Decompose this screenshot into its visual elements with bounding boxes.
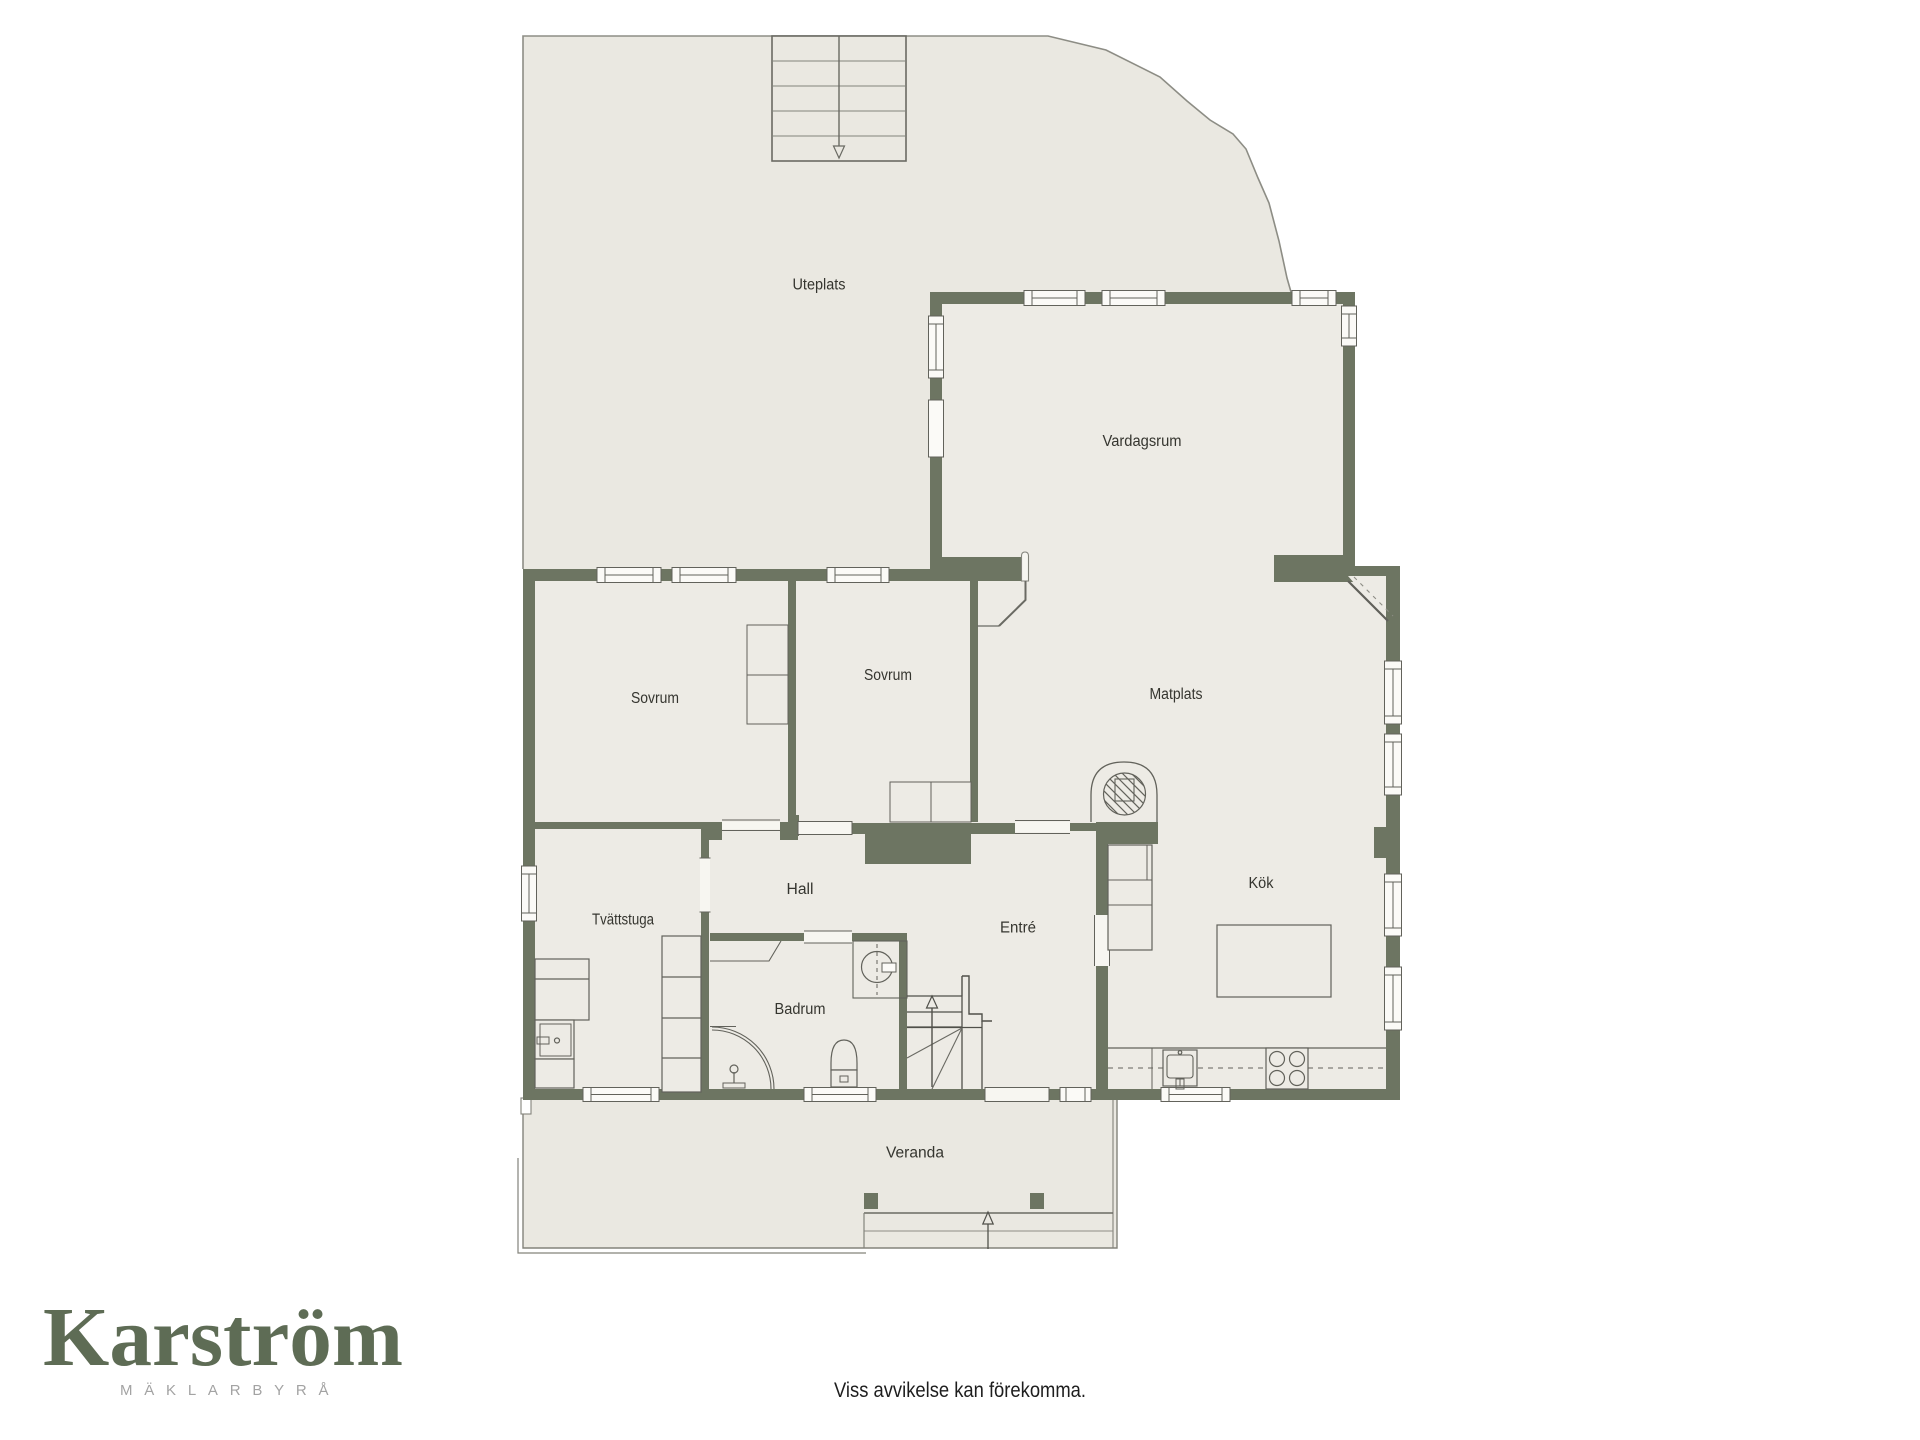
svg-text:Kök: Kök [1249,875,1274,892]
svg-text:Viss avvikelse kan förekomma.: Viss avvikelse kan förekomma. [834,1379,1086,1402]
svg-text:Vardagsrum: Vardagsrum [1103,433,1182,450]
svg-text:Badrum: Badrum [775,1001,826,1018]
svg-text:Karström: Karström [43,1291,403,1384]
svg-text:Sovrum: Sovrum [864,667,912,684]
svg-text:Tvättstuga: Tvättstuga [592,912,654,929]
svg-text:Veranda: Veranda [886,1145,944,1162]
svg-text:Hall: Hall [787,881,814,898]
svg-text:Sovrum: Sovrum [631,690,679,707]
svg-text:Uteplats: Uteplats [793,277,846,294]
svg-text:Matplats: Matplats [1150,686,1203,703]
svg-text:Entré: Entré [1000,920,1036,937]
